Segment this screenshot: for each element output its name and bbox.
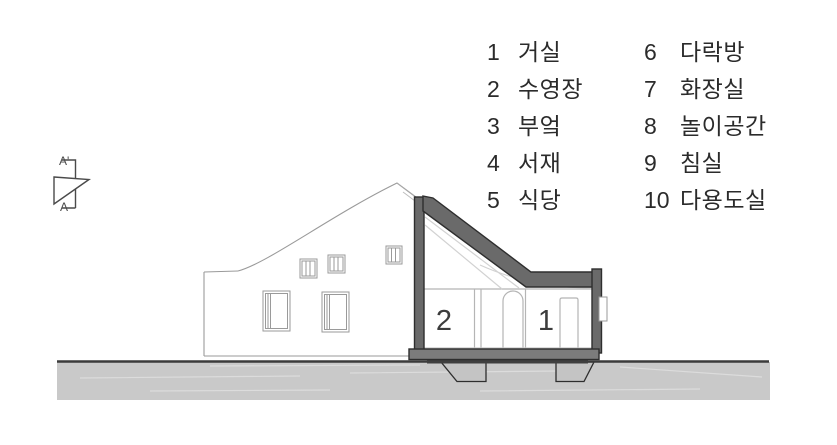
window-large-2 [322, 292, 349, 332]
window-small-2 [328, 255, 345, 273]
legend-label: 거실 [518, 40, 561, 65]
legend-number: 1 [487, 40, 518, 65]
section-marker-label-bottom: A [60, 201, 68, 213]
legend-column-1: 1 거실 2 수영장 3 부엌 4 서재 5 식당 [487, 40, 583, 212]
legend-label: 화장실 [680, 77, 745, 102]
legend-number: 8 [644, 114, 680, 139]
legend-label: 놀이공간 [680, 114, 767, 139]
room-label-pool: 2 [429, 306, 459, 336]
legend-row: 10 다용도실 [644, 188, 767, 212]
legend-number: 6 [644, 40, 680, 65]
legend-number: 4 [487, 151, 518, 176]
legend-label: 부엌 [518, 114, 561, 139]
legend-row: 7 화장실 [644, 77, 767, 101]
legend-row: 1 거실 [487, 40, 583, 64]
legend-row: 2 수영장 [487, 77, 583, 101]
slab [409, 349, 599, 360]
section-marker-label-top: A' [59, 155, 69, 167]
legend-row: 8 놀이공간 [644, 114, 767, 138]
legend-number: 3 [487, 114, 518, 139]
legend-row: 5 식당 [487, 188, 583, 212]
legend-number: 5 [487, 188, 518, 213]
legend-label: 수영장 [518, 77, 583, 102]
legend-label: 다용도실 [680, 188, 767, 213]
floor-slab [409, 349, 599, 364]
legend-label: 다락방 [680, 40, 745, 65]
legend-column-2: 6 다락방 7 화장실 8 놀이공간 9 침실 10 다용도실 [644, 40, 767, 212]
window-small-1 [300, 259, 317, 278]
room-label-living: 1 [531, 306, 561, 336]
legend-row: 4 서재 [487, 151, 583, 175]
legend-row: 9 침실 [644, 151, 767, 175]
legend-label: 서재 [518, 151, 561, 176]
exterior-vent-box [599, 297, 607, 321]
window-large-1 [263, 291, 290, 331]
architectural-section-diagram: A' A 2 1 1 거실 2 수영장 3 부엌 4 서재 5 식당 6 다락방 [0, 0, 837, 445]
cut-wall-left [415, 197, 425, 352]
window-small-3 [386, 246, 402, 264]
legend-number: 10 [644, 188, 680, 213]
legend-number: 9 [644, 151, 680, 176]
legend-row: 6 다락방 [644, 40, 767, 64]
legend-row: 3 부엌 [487, 114, 583, 138]
ground [57, 362, 770, 400]
legend-number: 7 [644, 77, 680, 102]
legend-label: 침실 [680, 151, 723, 176]
legend-number: 2 [487, 77, 518, 102]
legend-label: 식당 [518, 188, 561, 213]
